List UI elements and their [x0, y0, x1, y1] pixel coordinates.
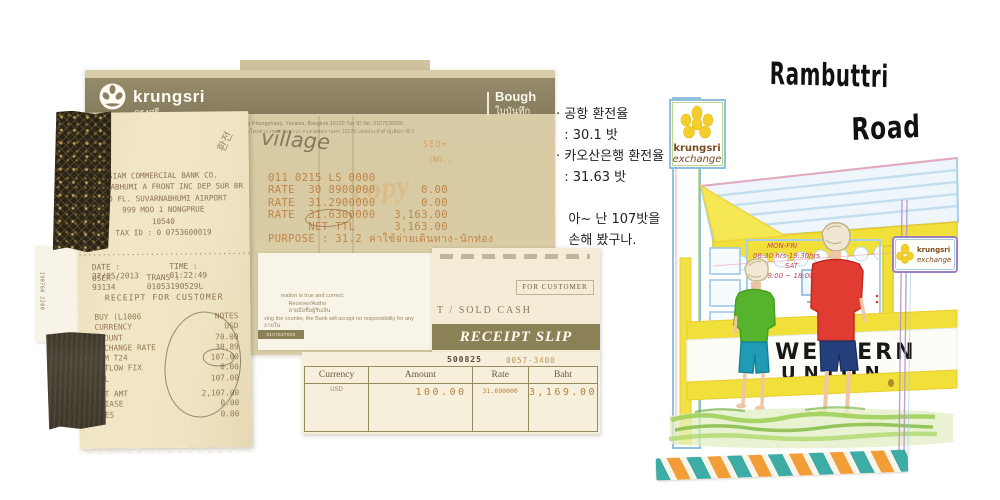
- brand-name: krungsri: [133, 87, 205, 107]
- band-divider: [487, 92, 489, 115]
- receipt-for-customer-title: RECEIPT FOR CUSTOMER: [78, 291, 250, 303]
- sliver-serial-text: 190760 2200: [38, 272, 44, 311]
- hours-line: 09:00 ~ 18:00: [763, 272, 814, 280]
- table-col-baht: Baht 3,169.00: [528, 367, 597, 431]
- receipt-line: RATE 31.63000003,163.00: [268, 209, 448, 221]
- leg: [762, 373, 763, 406]
- doc-type-en: Bough: [495, 89, 536, 104]
- carbon-copy-edge: 0107537000: [258, 330, 304, 339]
- stamp-smudge: [440, 254, 590, 259]
- hours-line: MON-FRI: [767, 242, 797, 250]
- smudge: [888, 379, 894, 387]
- washi-tape-gold-pattern: [53, 111, 112, 253]
- red-mark: [876, 301, 879, 304]
- receipt-line: RATE 30 89000000.00: [268, 184, 448, 196]
- krungsri-logo-icon: [98, 82, 127, 111]
- receipt-line: NET TTL3,163.00: [268, 221, 448, 233]
- pen-circle-small: [203, 348, 235, 366]
- receipt-slip-band: RECEIPT SLIP: [432, 324, 600, 350]
- leg: [825, 371, 827, 410]
- exchange-table: Currency USD Amount 100.00 Rate 31.69000…: [304, 366, 598, 432]
- receipt-purpose-line: PURPOSE : 31.2 ค่าใช้จ่ายเดินทาง-นักท่อง: [268, 233, 448, 245]
- handwritten-village-note: village: [260, 126, 331, 155]
- fine-print-text: mation is true and correct. Receiver/Aut…: [264, 293, 414, 331]
- col-header: Baht: [529, 367, 597, 384]
- teal-shorts: [739, 342, 769, 373]
- receipt-slip-lower: 500825 0057-3400 Currency USD Amount 100…: [302, 352, 600, 434]
- title-road: Road: [851, 109, 921, 148]
- receipt-line: 011 0215 LS 0000: [268, 172, 448, 184]
- arm: [735, 316, 736, 334]
- title-rambuttri: Rambuttri: [770, 56, 889, 95]
- krungsri-exchange-sign: krungsri exchange: [670, 100, 725, 168]
- cell-rate: 31.690000: [473, 384, 528, 431]
- cell-baht: 3,169.00: [529, 384, 597, 431]
- for-customer-label: FOR CUSTOMER: [516, 280, 594, 295]
- paper-crease: [352, 116, 354, 261]
- dotted-divider: ········································…: [78, 249, 250, 260]
- leg: [847, 371, 849, 412]
- user-trans-line: USER : 93134TRANS : 01053190529L: [78, 272, 250, 292]
- leg: [743, 373, 745, 404]
- small-sign-text-2: exchange: [917, 256, 951, 264]
- memo-header-band: krungsri กรุงศรี A member of MUFG, a glo…: [85, 78, 555, 114]
- memo-body-lines: 011 0215 LS 0000 RATE 30 89000000.00 RAT…: [268, 172, 448, 246]
- exchange-booth-drawing: krungsri exchange: [655, 88, 965, 480]
- pencil-scribble: 환전: [213, 129, 236, 154]
- scrapbook-page: 190760 2200 krungsri กรุงศรี A member of…: [0, 0, 1000, 500]
- doc-type-th: ใบบันทึก: [495, 104, 530, 119]
- slip-serial-2: 0057-3400: [506, 356, 556, 365]
- col-header: Currency: [305, 367, 368, 384]
- grass: [669, 407, 953, 448]
- head: [745, 259, 768, 281]
- table-col-rate: Rate 31.690000: [472, 367, 528, 431]
- bank-address-en: Rd, Bang Phongphang, Yanawa, Bangkok 101…: [228, 121, 403, 127]
- foot: [736, 404, 746, 409]
- paper-crease: [318, 116, 320, 261]
- col-header: Rate: [473, 367, 528, 384]
- sign-text-exchange: exchange: [673, 154, 722, 165]
- receipt-edge-sliver: 190760 2200: [36, 246, 82, 342]
- korean-journal-notes: · 공항 환전율 : 30.1 밧 · 카오산은행 환전율 : 31.63 밧 …: [556, 104, 664, 251]
- hours-line: SAT: [785, 262, 799, 270]
- receipt-slip-upper: FOR CUSTOMER T / SOLD CASH RECEIPT SLIP: [432, 248, 600, 354]
- col-header: Amount: [369, 367, 472, 384]
- cell-amount: 100.00: [369, 384, 472, 431]
- sold-cash-label: T / SOLD CASH: [437, 305, 532, 316]
- red-mark: [876, 295, 879, 298]
- no-label: (NO.,: [428, 155, 452, 164]
- sign-text-krungsri: krungsri: [673, 143, 720, 154]
- seq-label: SEQ=: [423, 140, 447, 150]
- cell-currency: USD: [305, 384, 368, 431]
- table-col-currency: Currency USD: [305, 367, 368, 431]
- slip-serial-1: 500825: [447, 355, 482, 364]
- washi-tape-brown: [46, 331, 107, 429]
- head: [822, 223, 850, 251]
- receipt-line: RATE 31.29000000.00: [268, 197, 448, 209]
- small-sign-text-1: krungsri: [917, 246, 950, 254]
- table-col-amount: Amount 100.00: [368, 367, 472, 431]
